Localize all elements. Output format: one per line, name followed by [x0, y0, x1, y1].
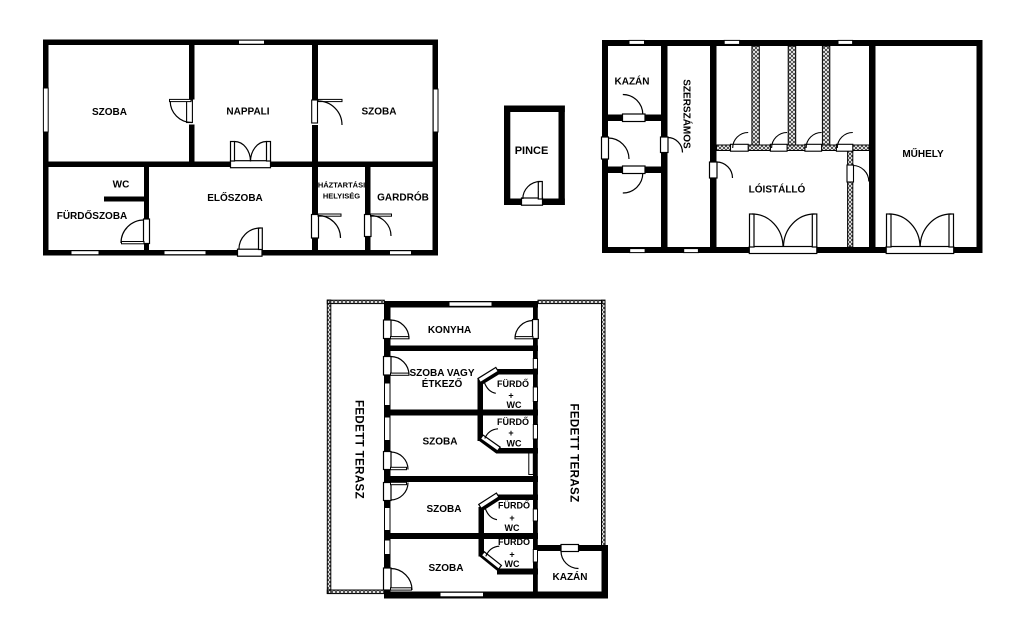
svg-text:SZOBA VAGY: SZOBA VAGY	[409, 368, 474, 379]
svg-text:+: +	[508, 428, 513, 438]
svg-text:SZOBA: SZOBA	[429, 563, 464, 574]
svg-text:GARDRÓB: GARDRÓB	[377, 191, 429, 204]
svg-text:FÜRDŐ: FÜRDŐ	[498, 499, 530, 510]
svg-text:HÁZTARTÁSI: HÁZTARTÁSI	[318, 181, 365, 190]
svg-text:WC: WC	[505, 523, 520, 533]
svg-text:WC: WC	[113, 180, 130, 191]
svg-text:KONYHA: KONYHA	[428, 325, 471, 336]
svg-text:SZERSZÁMOS: SZERSZÁMOS	[681, 79, 694, 149]
svg-text:SZOBA: SZOBA	[427, 504, 462, 515]
svg-text:WC: WC	[507, 400, 522, 410]
svg-text:SZOBA: SZOBA	[362, 107, 397, 118]
svg-text:MŰHELY: MŰHELY	[902, 147, 944, 160]
svg-text:ÉTKEZŐ: ÉTKEZŐ	[422, 377, 463, 390]
svg-text:FEDETT TERASZ: FEDETT TERASZ	[353, 400, 365, 499]
svg-text:FÜRDŐ: FÜRDŐ	[497, 378, 529, 389]
svg-text:KAZÁN: KAZÁN	[553, 570, 588, 583]
svg-text:NAPPALI: NAPPALI	[226, 107, 269, 118]
svg-text:SZOBA: SZOBA	[423, 437, 458, 448]
svg-text:+: +	[509, 513, 514, 523]
svg-text:FÜRDŐ: FÜRDŐ	[498, 536, 530, 547]
svg-text:ELŐSZOBA: ELŐSZOBA	[207, 191, 263, 204]
svg-text:FÜRDŐSZOBA: FÜRDŐSZOBA	[57, 209, 128, 222]
svg-text:KAZÁN: KAZÁN	[615, 75, 650, 88]
svg-text:+: +	[508, 390, 513, 400]
svg-text:HELYISÉG: HELYISÉG	[323, 192, 360, 201]
svg-text:FÜRDŐ: FÜRDŐ	[497, 416, 529, 427]
svg-text:WC: WC	[507, 438, 522, 448]
svg-text:LÓISTÁLLÓ: LÓISTÁLLÓ	[749, 183, 806, 196]
svg-text:+: +	[509, 549, 514, 559]
svg-text:WC: WC	[505, 559, 520, 569]
svg-text:PINCE: PINCE	[515, 145, 549, 157]
svg-text:SZOBA: SZOBA	[92, 107, 127, 118]
svg-text:FEDETT TERASZ: FEDETT TERASZ	[568, 403, 580, 502]
